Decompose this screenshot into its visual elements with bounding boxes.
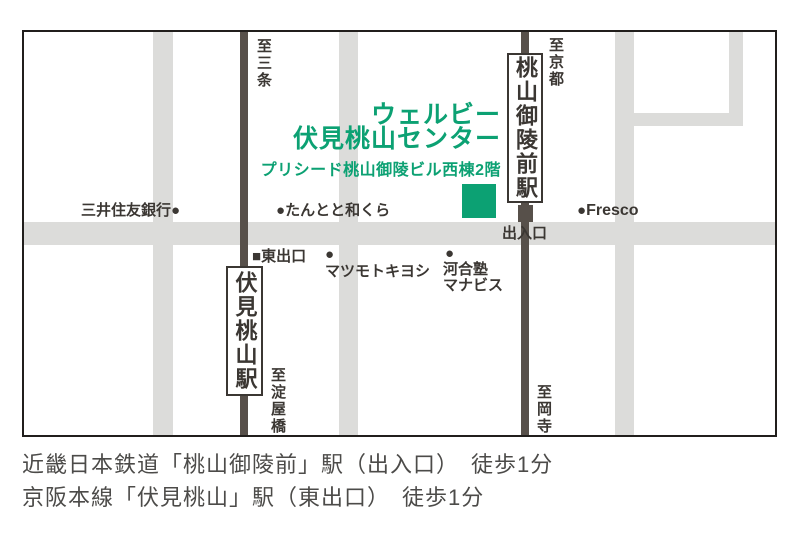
poi-bank: 三井住友銀行● — [81, 202, 180, 219]
center-building-label: プリシード桃山御陵ビル西棟2階 — [224, 156, 501, 180]
direction-label-okadera: 至岡寺 — [533, 384, 554, 435]
station-box-momoyamagoryomae: 桃山御陵前駅 — [507, 53, 543, 203]
center-title-block: ウェルビー 伏見桃山センター プリシード桃山御陵ビル西棟2階 — [224, 103, 501, 180]
road-vertical-topright-stub — [729, 32, 743, 126]
exit-square-icon: ■ — [252, 248, 261, 265]
center-name-line2: 伏見桃山センター — [224, 127, 501, 151]
poi-matsumotokiyoshi-label: マツモトキヨシ — [325, 263, 430, 280]
access-note-kintetsu: 近畿日本鉄道「桃山御陵前」駅（出入口） 徒歩1分 — [22, 448, 553, 481]
poi-fresco: ●Fresco — [577, 202, 639, 219]
exit-higashideguchi: ■東出口 — [252, 248, 306, 265]
map-canvas: 桃山御陵前駅 伏見桃山駅 至三条 至京都 至淀屋橋 至岡寺 ウェルビー 伏見桃山… — [22, 30, 777, 437]
poi-kawaijuku-label-line1: 河合塾 — [443, 262, 503, 278]
poi-dot-icon: ● — [445, 246, 503, 262]
exit-higashideguchi-label: 東出口 — [261, 248, 306, 265]
direction-label-kyoto: 至京都 — [545, 37, 566, 88]
center-name-line1: ウェルビー — [224, 103, 501, 127]
direction-label-yodoyabashi: 至淀屋橋 — [267, 367, 288, 435]
poi-dot-icon: ● — [171, 202, 180, 219]
poi-kawaijuku: ● 河合塾 マナビス — [443, 246, 503, 294]
poi-fresco-label: Fresco — [586, 202, 638, 219]
access-map-page: 桃山御陵前駅 伏見桃山駅 至三条 至京都 至淀屋橋 至岡寺 ウェルビー 伏見桃山… — [0, 0, 800, 541]
poi-dot-icon: ● — [276, 202, 285, 219]
poi-tantoto-label: たんとと和くら — [285, 202, 390, 219]
poi-kawaijuku-label-line2: マナビス — [443, 278, 503, 294]
access-notes: 近畿日本鉄道「桃山御陵前」駅（出入口） 徒歩1分 京阪本線「伏見桃山」駅（東出口… — [22, 448, 553, 514]
road-horizontal-topright — [630, 113, 743, 126]
station-exit-square-icon — [518, 205, 533, 222]
poi-bank-label: 三井住友銀行 — [81, 202, 171, 219]
direction-label-sanjo: 至三条 — [253, 38, 274, 89]
road-horizontal-main — [24, 222, 775, 245]
poi-dot-icon: ● — [577, 202, 586, 219]
poi-tantoto: ●たんとと和くら — [276, 202, 390, 219]
poi-matsumotokiyoshi: ● マツモトキヨシ — [325, 246, 430, 280]
center-location-square — [462, 184, 496, 218]
exit-deiriguchi-label: 出入口 — [502, 225, 547, 242]
access-note-keihan: 京阪本線「伏見桃山」駅（東出口） 徒歩1分 — [22, 481, 553, 514]
station-box-fushimimomoyama: 伏見桃山駅 — [226, 266, 263, 396]
poi-dot-icon: ● — [325, 246, 430, 263]
